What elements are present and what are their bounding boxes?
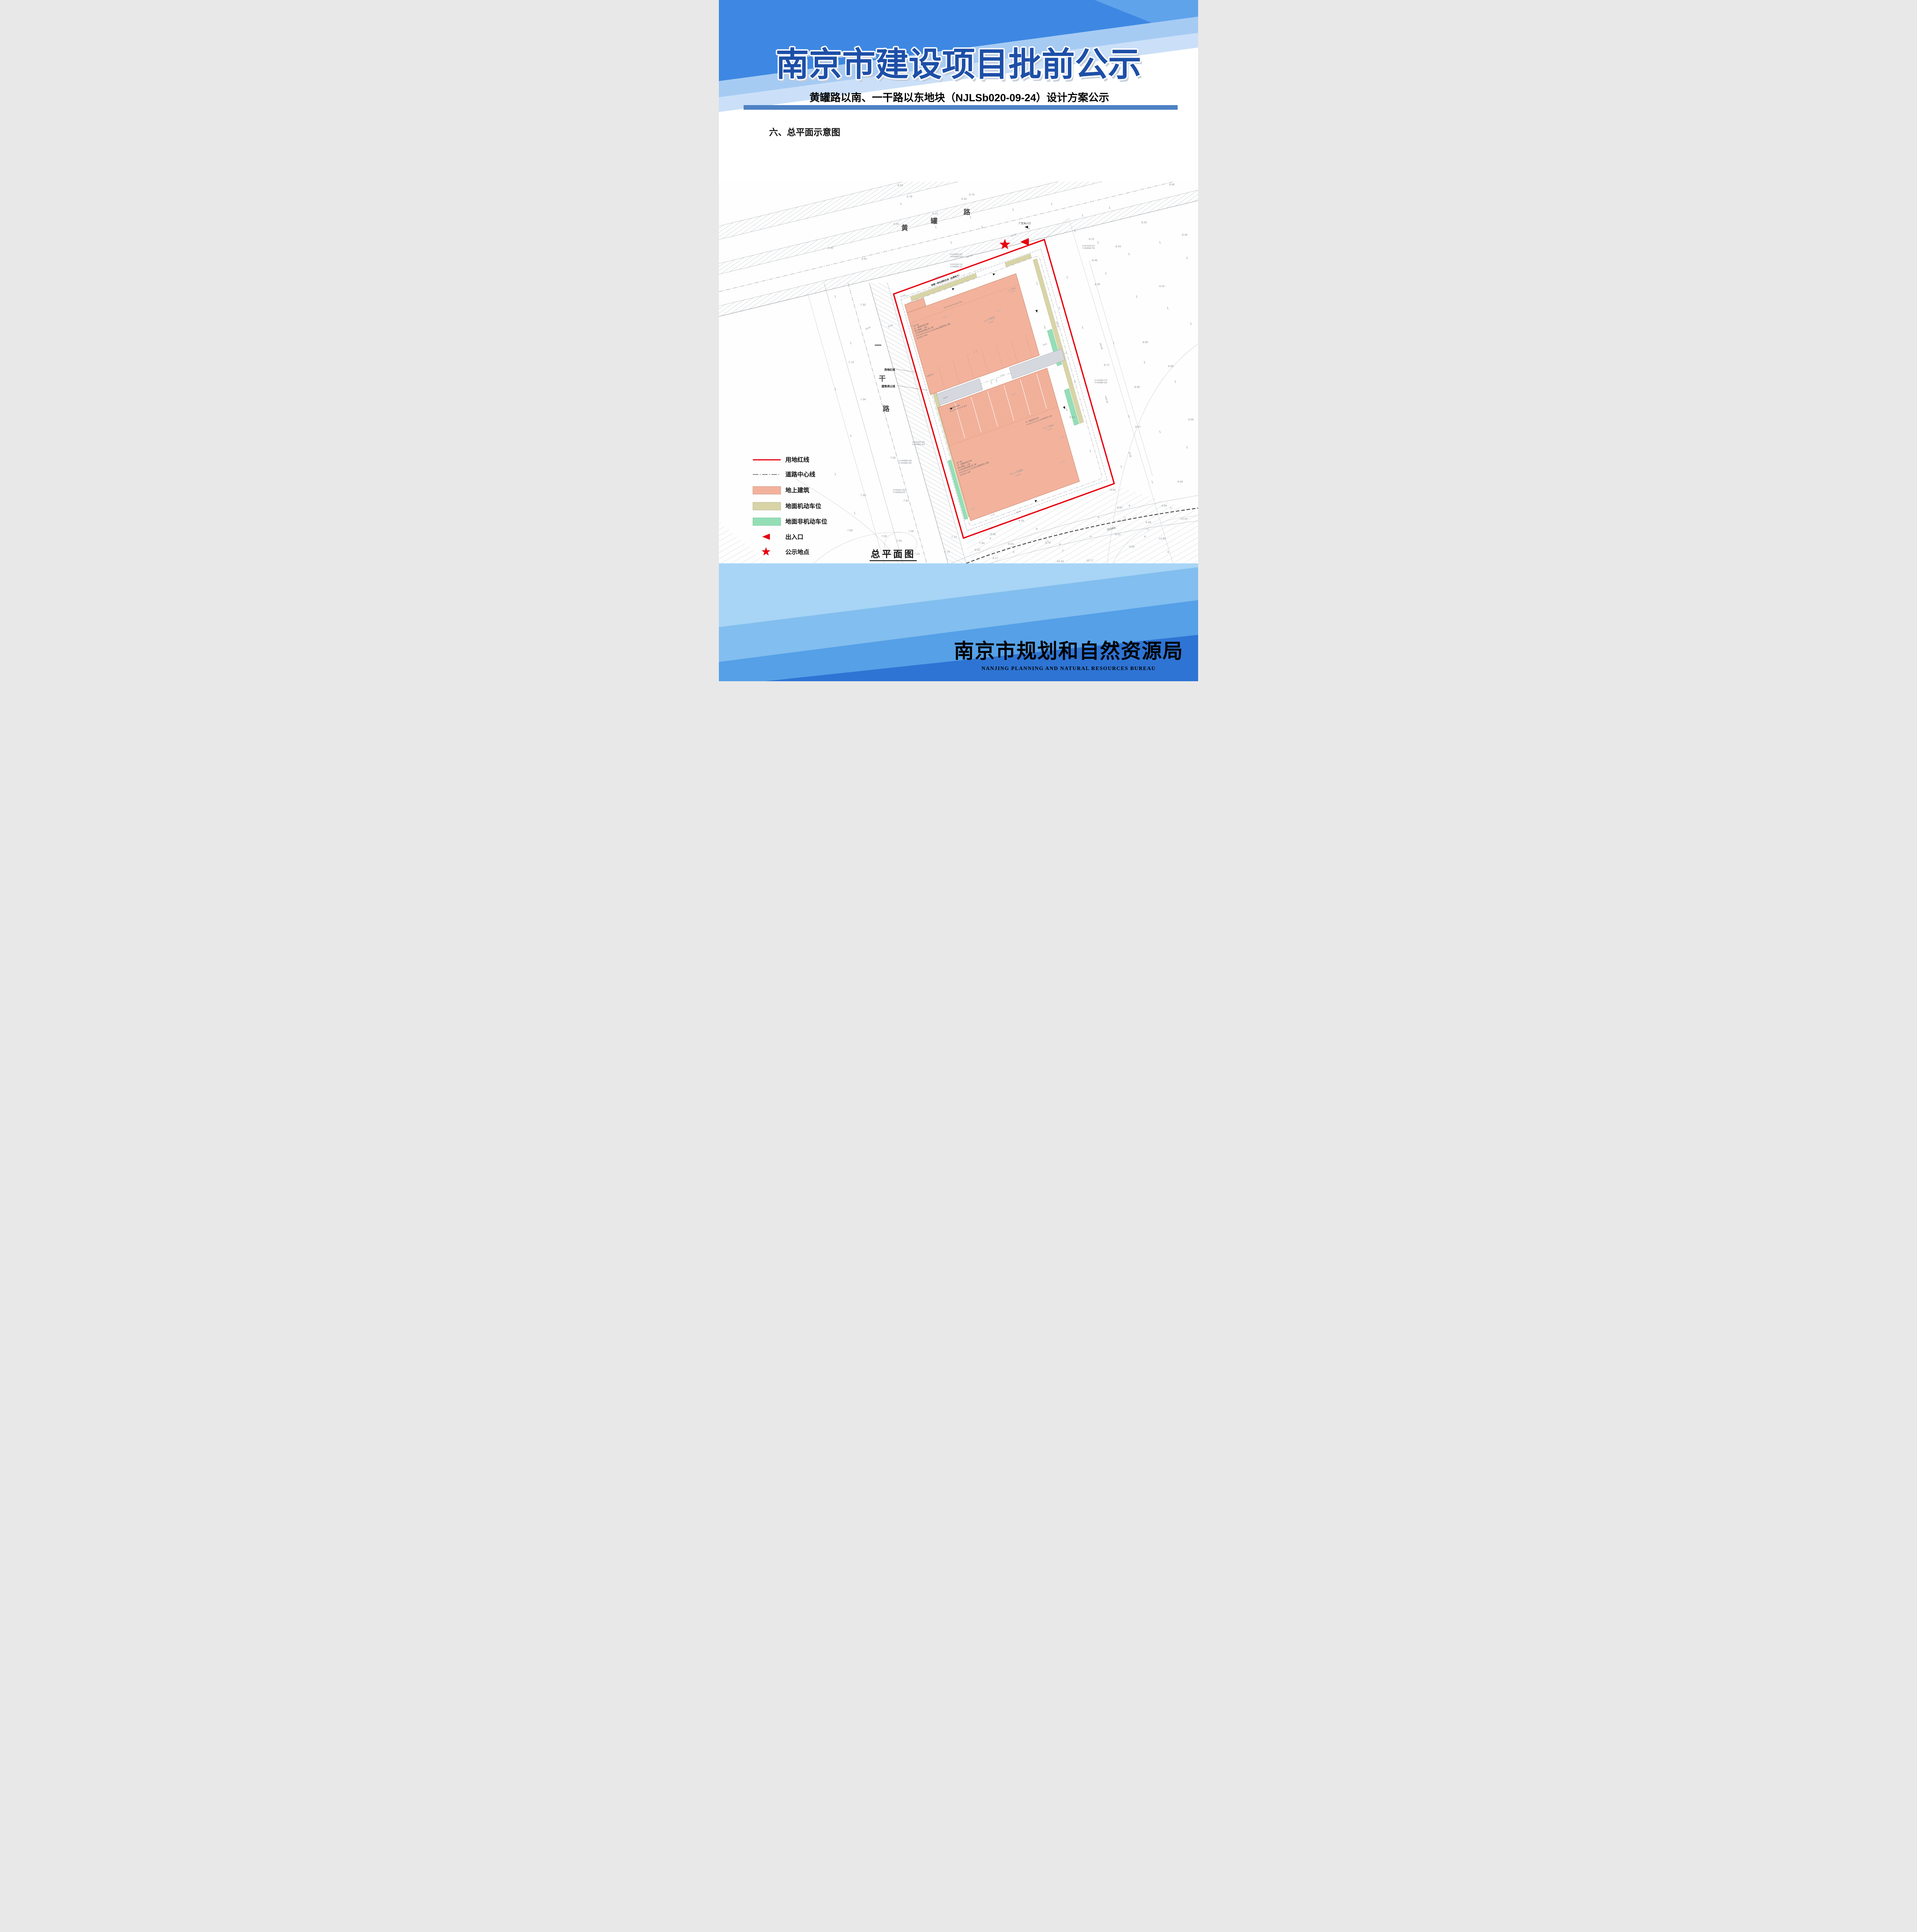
map-label: 用地红线 — [884, 368, 895, 371]
spot-elevation: ·8.85 — [1142, 340, 1148, 344]
vegetation-mark: ψ — [1090, 535, 1092, 538]
spot-elevation: ·7.70 — [848, 361, 854, 364]
page-title: 南京市建设项目批前公示 — [776, 46, 1141, 83]
vegetation-mark: ψ — [1121, 520, 1123, 522]
vegetation-mark: ψ — [1036, 527, 1038, 530]
coordinate-label: Y=344848.790 — [1082, 247, 1095, 250]
spot-elevation: ·5.74 — [968, 193, 974, 196]
spot-elevation: ·9.38 — [1145, 520, 1151, 524]
spot-elevation: ·8.20 — [1141, 221, 1147, 224]
spot-elevation: ·7.92 — [860, 303, 866, 306]
spot-elevation: ·7.92 — [889, 456, 896, 459]
spot-elevation: ·13.44 — [1180, 517, 1187, 520]
legend-row: 地面非机动车位 — [753, 518, 827, 526]
vegetation-mark: ψ — [1167, 551, 1169, 553]
spot-elevation: ·9.06 — [1187, 418, 1193, 421]
spot-elevation: ·8.64 — [1069, 415, 1075, 419]
spot-elevation: ·9.94 — [1161, 504, 1167, 507]
spot-elevation: ·7.94 — [978, 541, 984, 545]
spot-elevation: ·6.44 — [960, 197, 967, 201]
spot-elevation: ·8.80 — [1134, 385, 1140, 389]
legend-label: 出入口 — [785, 533, 804, 541]
spot-elevation: ·7.94 — [860, 398, 866, 401]
spot-elevation: ·6.81 — [861, 257, 867, 260]
spot-elevation: ·9.48 — [1176, 480, 1183, 483]
footer-org-cn: 南京市规划和自然资源局 — [954, 640, 1183, 663]
spot-elevation: ·6.92 — [827, 246, 833, 250]
spot-elevation: ·8.43 — [1115, 245, 1121, 248]
page-subtitle: 黄罐路以南、一干路以东地块（NJLSb020-09-24）设计方案公示 — [809, 92, 1109, 104]
spot-elevation: ·8.74 — [1044, 541, 1050, 544]
spot-elevation: ·15.34 — [1056, 560, 1064, 563]
legend-building-swatch — [753, 486, 781, 494]
spot-elevation: ·8.46 — [1091, 259, 1097, 262]
legend-label: 用地红线 — [785, 456, 810, 463]
legend-label: 道路中心线 — [785, 471, 815, 478]
coordinate-label: X=310095.507 — [950, 253, 963, 256]
vegetation-mark: ψ — [1059, 543, 1061, 546]
vegetation-mark: ψ — [1013, 551, 1015, 553]
vegetation-mark: ψ — [1129, 504, 1130, 507]
spot-elevation: ·7.75 — [943, 550, 950, 554]
section-heading: 六、总平面示意图 — [769, 127, 840, 137]
map-label: 总平面图 — [871, 549, 916, 560]
site-plan-map: ∥∥∥∥∥∥∥∥∥∥∥∥∥∥∥∥∥∥∥∥∥∥∥∥∥∥∥∥∥∥∥∥∥∥∥∥∥∥ψψ… — [719, 182, 1198, 563]
spot-elevation: ·8.17 — [992, 556, 998, 560]
header-divider-bar — [744, 105, 1178, 110]
map-label: 建筑退让线 — [882, 384, 895, 388]
spot-elevation: ·13.86 — [1158, 537, 1166, 540]
coordinate-label: Y=344884.930 — [1095, 382, 1107, 384]
spot-elevation: ·7.06 — [907, 529, 914, 533]
spot-elevation: ·8.56 — [1094, 282, 1100, 286]
spot-elevation: ·8.63 — [1007, 542, 1013, 546]
legend-label: 地面非机动车位 — [785, 518, 827, 525]
spot-elevation: ·8.42 — [1158, 284, 1165, 288]
coordinate-label: X=310150.110 — [950, 264, 963, 266]
spot-elevation: ·8.39 — [1181, 233, 1187, 236]
vegetation-mark: ψ — [989, 537, 991, 540]
spot-elevation: ·8.93 — [1109, 488, 1115, 492]
legend-row: 地面机动车位 — [753, 502, 822, 510]
spot-elevation: ·7.93 — [860, 493, 866, 497]
spot-elevation: ·8.89 — [1167, 364, 1173, 368]
road-name-char: 路 — [883, 405, 890, 413]
road-name-char: 罐 — [930, 217, 938, 225]
coordinate-label: X=310144.227 — [1082, 245, 1095, 247]
spot-elevation: ·7.05 — [896, 539, 902, 543]
legend-label: 地上建筑 — [785, 486, 810, 494]
spot-elevation: ·8.86 — [989, 532, 996, 536]
road-name-char: 干 — [879, 375, 886, 383]
road-name-char: 一 — [875, 342, 882, 349]
legend-label: 地面机动车位 — [785, 502, 822, 510]
spot-elevation: ·7.12 — [950, 535, 957, 539]
coordinate-label: Y=344845.206 — [899, 462, 912, 464]
spot-elevation: ·6.23 — [931, 212, 938, 215]
coordinate-label: X=310009.426 — [912, 441, 925, 444]
spot-elevation: ·9.02 — [1114, 532, 1120, 536]
road-name-char: 路 — [964, 208, 970, 216]
coordinate-label: X=309957.655 — [893, 489, 906, 492]
coordinate-label: X=310008.270 — [1095, 379, 1107, 382]
vegetation-mark: ψ — [1144, 535, 1146, 538]
spot-elevation: ·8.02 — [974, 548, 980, 551]
coordinate-label: Y=344833.533 — [950, 256, 963, 258]
coordinate-label: Y=344835.127 — [950, 266, 963, 268]
spot-elevation: ·6.78 — [906, 195, 912, 198]
header-banner: 南京市建设项目批前公示 南京市建设项目批前公示 黄罐路以南、一干路以东地块（NJ… — [719, 0, 1198, 182]
spot-elevation: ·8.24 — [1018, 519, 1024, 522]
footer-org-en: NANJING PLANNING AND NATURAL RESOURCES B… — [982, 665, 1156, 671]
coordinate-label: Y=344838.022 — [893, 492, 906, 494]
legend-label: 公示地点 — [785, 548, 810, 556]
coordinate-label: X=309985.228 — [899, 460, 912, 462]
spot-elevation: ·8.72 — [1103, 363, 1109, 367]
spot-elevation: ·9.69 — [1128, 545, 1134, 548]
coordinate-label: Y=344800.364 — [912, 444, 925, 446]
spot-elevation: ·8.97 — [1134, 425, 1141, 429]
spot-elevation: ·8.53 — [897, 184, 903, 187]
spot-elevation: ·9.92 — [1116, 506, 1122, 509]
notice-poster: 南京市建设项目批前公示 南京市建设项目批前公示 黄罐路以南、一干路以东地块（NJ… — [719, 0, 1198, 681]
legend-bike-parking-swatch — [753, 518, 781, 526]
spot-elevation: ·7.81 — [902, 499, 909, 502]
map-label: 厂区出入口 — [1019, 222, 1031, 225]
spot-elevation: ·6.92 — [893, 222, 899, 226]
spot-elevation: ·6.85 — [1168, 183, 1175, 186]
spot-elevation: ·7.06 — [880, 534, 887, 538]
legend-parking-swatch — [753, 502, 781, 510]
spot-elevation: ·8.22 — [1088, 237, 1094, 241]
spot-elevation: ·7.80 — [846, 529, 853, 532]
road-name-char: 黄 — [901, 224, 908, 232]
spot-elevation: ·15.77 — [1086, 559, 1093, 562]
footer-banner: 南京市规划和自然资源局 NANJING PLANNING AND NATURAL… — [719, 563, 1198, 681]
vegetation-mark: ψ — [1098, 516, 1100, 519]
